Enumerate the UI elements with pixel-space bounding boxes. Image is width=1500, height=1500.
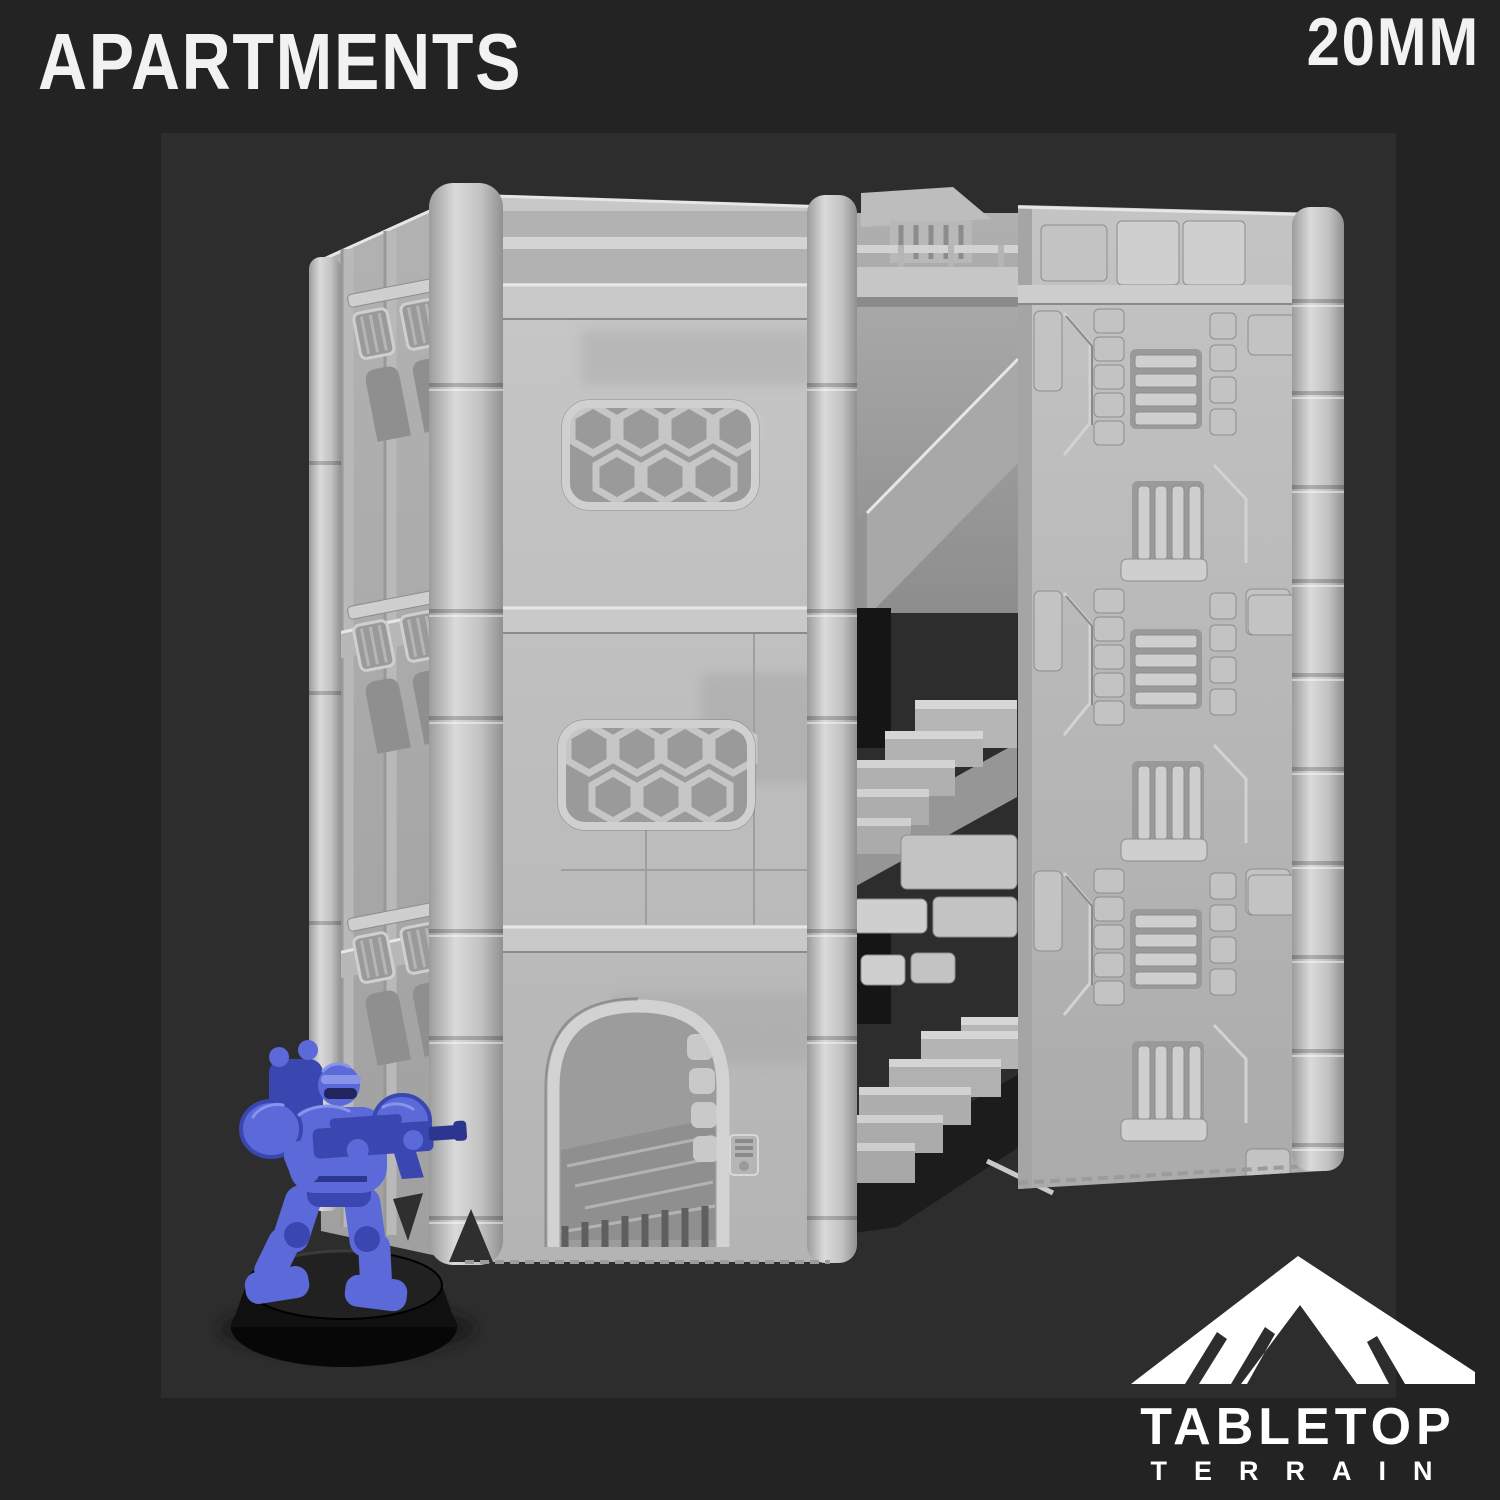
right-wall — [1018, 205, 1344, 1195]
arched-doorway — [546, 999, 723, 1247]
brand-subname: TERRAIN — [1151, 1456, 1460, 1486]
brand-logo: TABLETOP TERRAIN — [1093, 1232, 1493, 1492]
render-area — [161, 133, 1396, 1398]
wall-corner-pillar — [1292, 207, 1344, 1171]
page-title: APARTMENTS — [38, 22, 522, 102]
visor — [324, 1088, 357, 1099]
building-render — [161, 133, 1396, 1398]
door-keypad — [730, 1135, 758, 1175]
brand-name: TABLETOP — [1140, 1398, 1455, 1456]
mountain-icon — [1131, 1256, 1475, 1384]
scale-badge: 20MM — [1307, 8, 1480, 76]
product-image: APARTMENTS 20MM TABLETOP TERRAIN — [0, 0, 1500, 1500]
